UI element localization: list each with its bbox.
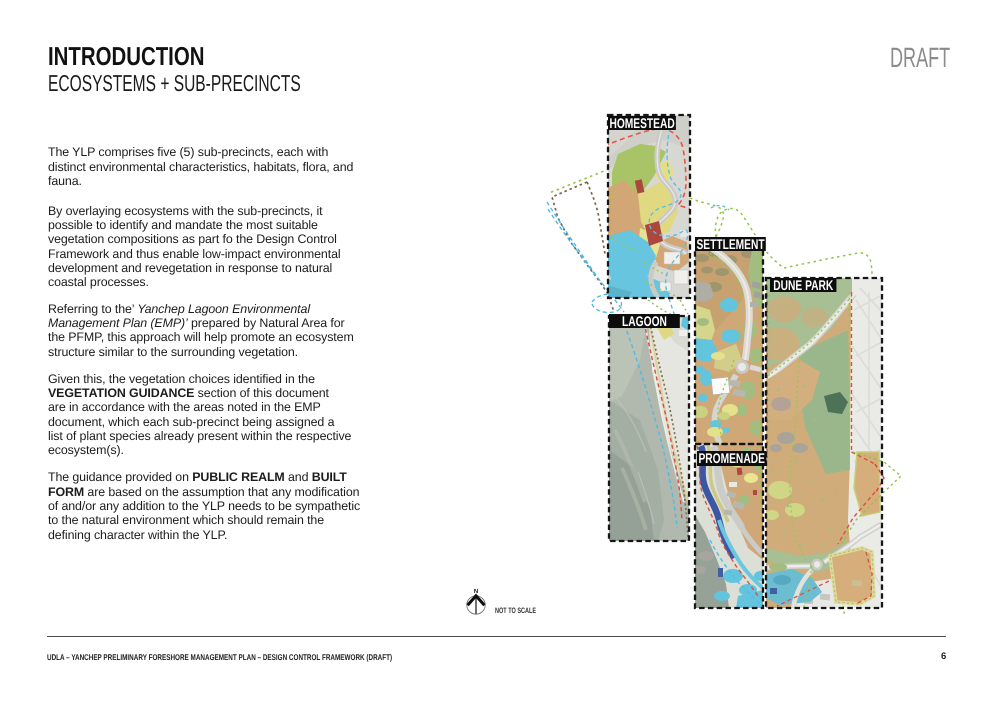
svg-text:N: N: [474, 588, 478, 595]
